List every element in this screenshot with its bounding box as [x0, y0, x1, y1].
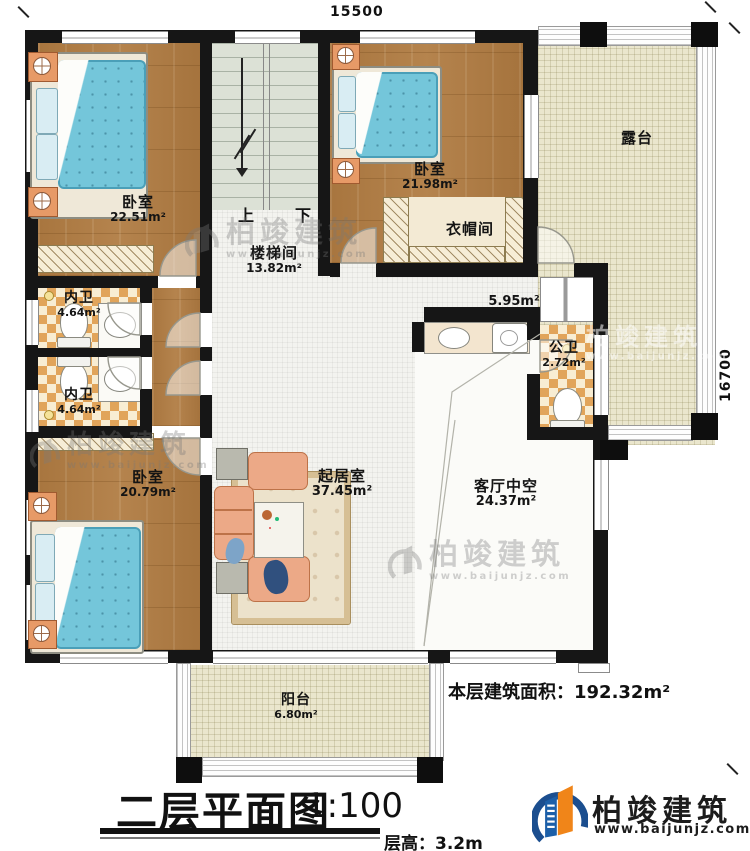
- room-area: 21.98m²: [402, 178, 458, 191]
- room-area: 5.95m²: [488, 295, 539, 310]
- wall: [200, 475, 212, 663]
- stair-arrow-head: [236, 168, 248, 177]
- room-name: 楼梯间: [246, 245, 302, 262]
- wall: [140, 288, 152, 303]
- room-name: 阳台: [274, 693, 317, 709]
- floor-plan-canvas: 15500 16700: [0, 0, 750, 851]
- table-decor: [262, 510, 272, 520]
- room-name: 客厅中空: [474, 478, 538, 495]
- room-label-bedroom-tr: 卧室 21.98m²: [402, 161, 458, 191]
- terrace-railing: [538, 26, 692, 46]
- brand-logo-url: www.baijunjz.com: [594, 822, 750, 837]
- stair-stringer: [263, 43, 270, 210]
- room-area: 37.45m²: [312, 485, 372, 500]
- washing-machine-drum: [500, 330, 518, 346]
- wardrobe: [32, 245, 154, 273]
- window: [524, 95, 539, 178]
- terrace-railing: [696, 45, 716, 415]
- room-name: 卧室: [120, 469, 176, 486]
- bed-sheet: [55, 527, 137, 645]
- pillow: [338, 76, 356, 112]
- floor-area-label: 本层建筑面积：: [448, 682, 574, 703]
- wall: [574, 263, 608, 277]
- wall: [318, 30, 330, 276]
- pillow: [36, 134, 58, 180]
- stair-down-label: 下: [295, 207, 311, 225]
- sliding-door: [213, 651, 428, 664]
- wall: [376, 263, 538, 277]
- wall: [25, 276, 158, 288]
- column: [417, 757, 443, 783]
- pillow: [35, 534, 55, 582]
- bed-sheet: [58, 60, 142, 185]
- room-label-bath-a: 内卫 4.64m²: [57, 291, 100, 319]
- coffee-table: [254, 502, 304, 558]
- window: [450, 651, 556, 664]
- wall: [140, 335, 152, 357]
- armchair: [248, 452, 308, 490]
- window: [26, 300, 39, 345]
- column: [691, 413, 718, 440]
- window: [594, 460, 609, 530]
- balcony-railing: [429, 663, 444, 761]
- room-label-terrace: 露台: [621, 130, 653, 147]
- room-area: 4.64m²: [57, 307, 100, 319]
- wardrobe: [409, 246, 505, 263]
- room-label-void: 客厅中空 24.37m²: [474, 478, 538, 509]
- toilet-tank: [57, 356, 91, 367]
- window: [26, 390, 39, 432]
- wall: [200, 347, 212, 361]
- pillow: [338, 113, 356, 149]
- toilet-tank: [57, 337, 91, 348]
- room-name: 露台: [621, 130, 653, 147]
- balcony-railing: [202, 757, 419, 777]
- wall: [412, 322, 424, 352]
- floor-area-value: 192.32m²: [574, 682, 670, 703]
- lamp: [337, 161, 354, 178]
- wall-step: [578, 663, 610, 673]
- room-label-stairwell: 楼梯间 13.82m²: [246, 245, 302, 275]
- room-label-bedroom-bl: 卧室 20.79m²: [120, 469, 176, 499]
- window: [594, 335, 609, 415]
- room-name: 起居室: [312, 468, 372, 485]
- floor-drain: [44, 291, 54, 301]
- sofa-cushion-line: [214, 533, 252, 535]
- room-label-closet: 衣帽间: [446, 221, 494, 238]
- wall: [200, 30, 212, 276]
- room-name: 公卫: [542, 341, 585, 357]
- stair-up-label: 上: [238, 207, 254, 225]
- dimension-tick: [726, 763, 738, 775]
- room-name: 内卫: [57, 291, 100, 307]
- room-name: 卧室: [402, 161, 458, 178]
- balcony-railing: [176, 663, 191, 761]
- room-name: 卧室: [110, 194, 166, 211]
- side-table: [216, 448, 248, 480]
- room-area: 20.79m²: [120, 486, 176, 499]
- title-underline-thin: [100, 837, 380, 839]
- window: [540, 277, 595, 322]
- floor-height-note: 层高：3.2m: [384, 829, 483, 851]
- pillow: [36, 88, 58, 134]
- room-label-bath-b: 内卫 4.64m²: [57, 388, 100, 416]
- room-name: 内卫: [57, 388, 100, 404]
- window: [235, 31, 300, 44]
- bed-sheet: [356, 72, 434, 154]
- dimension-tick: [728, 22, 740, 34]
- column: [580, 22, 607, 47]
- floor-area-note: 本层建筑面积：192.32m²: [448, 678, 670, 704]
- sofa-cushion-line: [214, 509, 252, 511]
- wall: [200, 276, 212, 313]
- side-table: [216, 562, 248, 594]
- room-label-corridor: 5.95m²: [488, 295, 539, 310]
- wall: [527, 374, 540, 427]
- room-area: 2.72m²: [542, 357, 585, 369]
- column: [691, 22, 718, 47]
- wall: [527, 427, 608, 440]
- drawing-scale: 1:100: [305, 786, 403, 826]
- dimension-top: 15500: [330, 4, 384, 20]
- title-underline-thick: [100, 828, 380, 834]
- floor-drain: [44, 410, 54, 420]
- room-area: 6.80m²: [274, 709, 317, 721]
- sink: [104, 366, 136, 392]
- wall: [200, 395, 212, 438]
- terrace-railing: [608, 425, 693, 441]
- room-area: 4.64m²: [57, 404, 100, 416]
- wall: [25, 348, 152, 357]
- lamp: [33, 497, 50, 514]
- room-area: 22.51m²: [110, 211, 166, 224]
- window: [360, 31, 475, 44]
- room-label-bedroom-tl: 卧室 22.51m²: [110, 194, 166, 224]
- room-area: 13.82m²: [246, 262, 302, 275]
- wall: [25, 426, 152, 438]
- lamp: [33, 625, 50, 642]
- lamp: [33, 192, 51, 210]
- window: [62, 31, 168, 44]
- room-label-living: 起居室 37.45m²: [312, 468, 372, 499]
- wardrobe: [383, 197, 409, 263]
- room-label-balcony: 阳台 6.80m²: [274, 693, 317, 721]
- dimension-tick: [704, 1, 716, 13]
- wall: [330, 263, 340, 277]
- lamp: [33, 57, 51, 75]
- dimension-tick: [17, 6, 29, 18]
- dimension-right: 16700: [718, 348, 734, 402]
- wall: [527, 322, 540, 340]
- floor-hallway: [152, 288, 200, 426]
- sink: [104, 312, 136, 338]
- lamp: [337, 47, 354, 64]
- room-name: 衣帽间: [446, 221, 494, 238]
- room-label-public-bath: 公卫 2.72m²: [542, 341, 585, 369]
- wall-pier: [600, 440, 628, 460]
- room-area: 24.37m²: [474, 495, 538, 510]
- sink: [438, 327, 470, 349]
- brand-logo-icon: [532, 779, 588, 845]
